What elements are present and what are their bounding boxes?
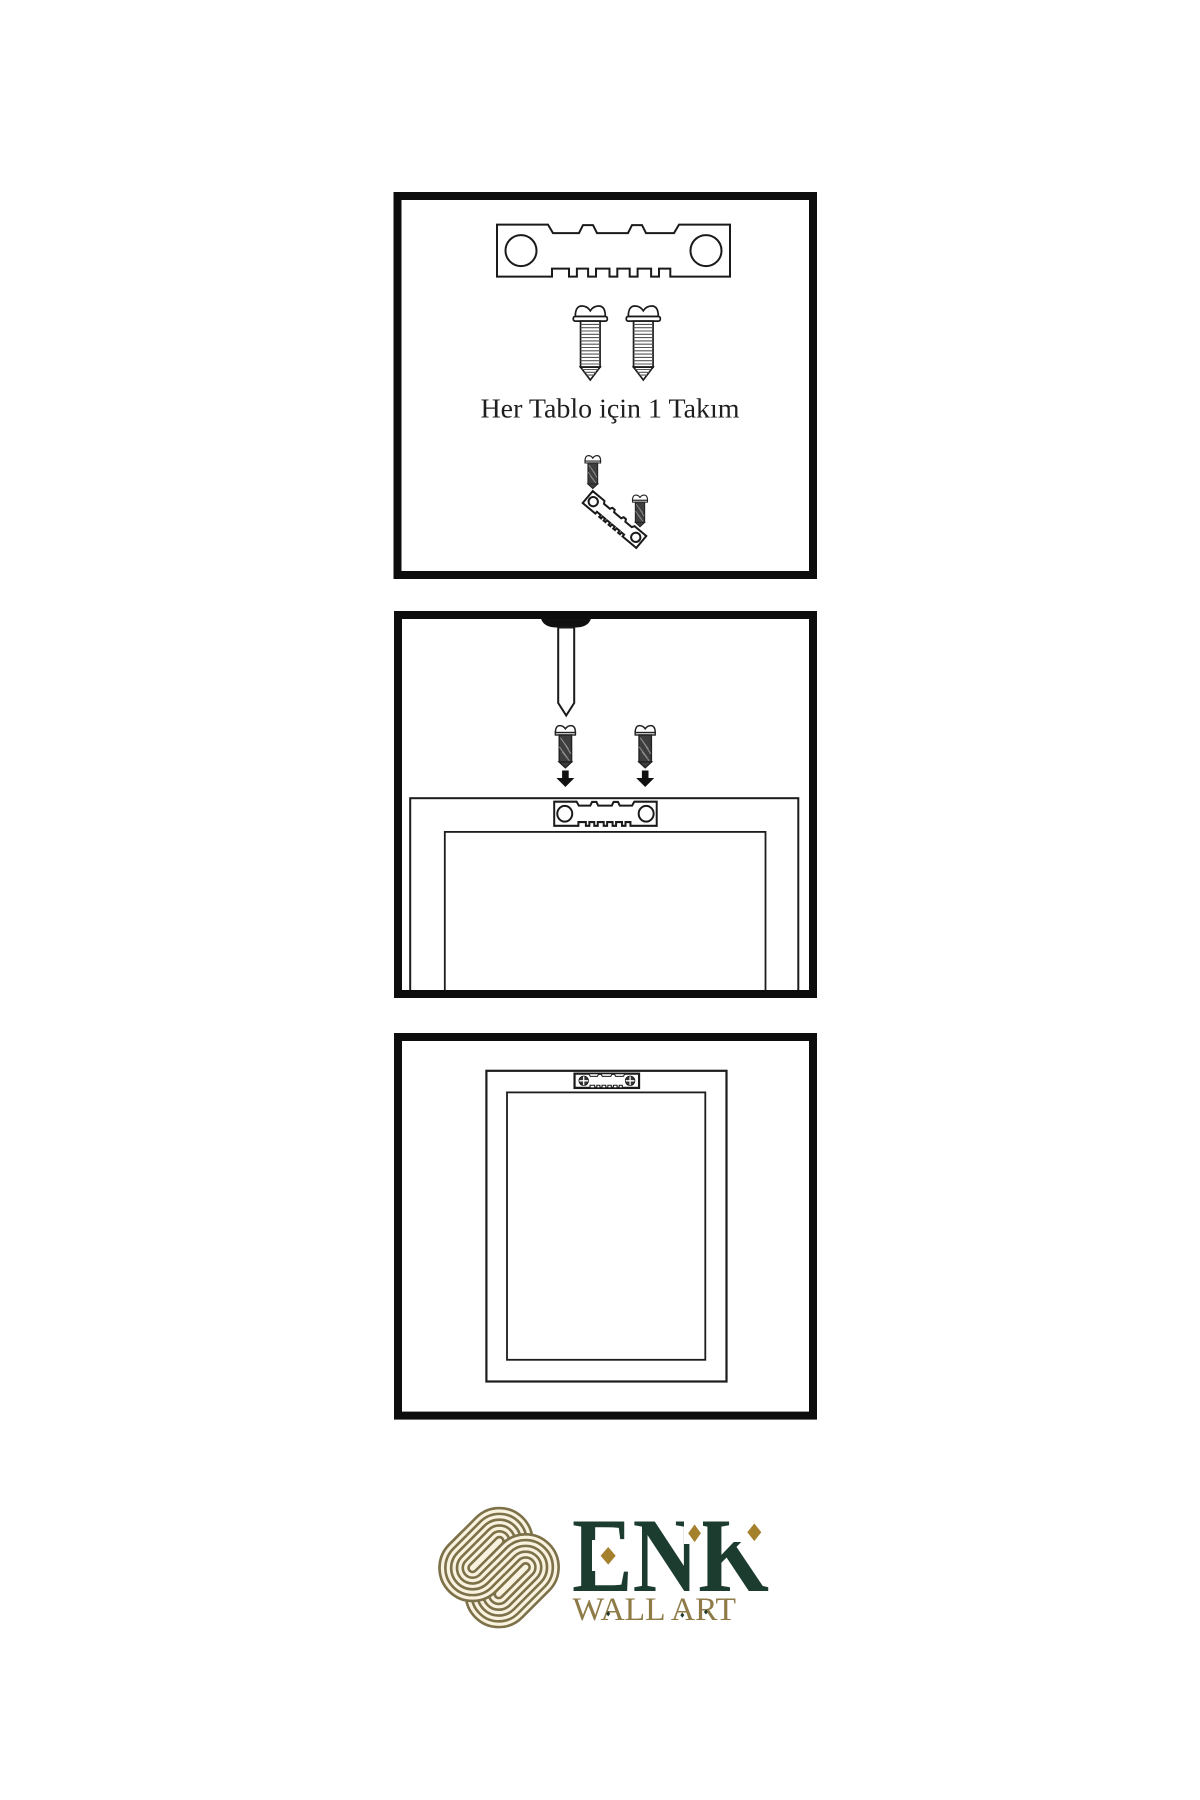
svg-text:Her Tablo için 1 Takım: Her Tablo için 1 Takım [481, 393, 740, 424]
svg-text:WALL ART: WALL ART [573, 1592, 737, 1628]
